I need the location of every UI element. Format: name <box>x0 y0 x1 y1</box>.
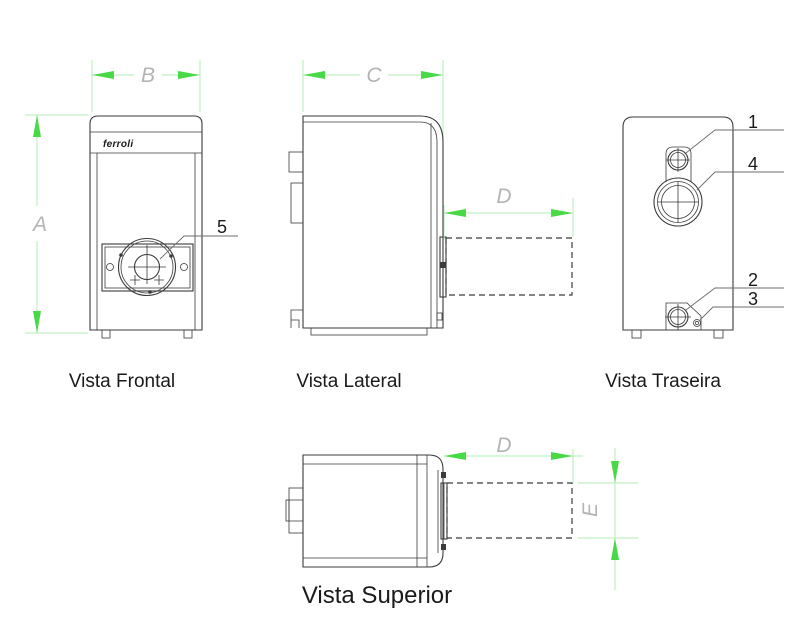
top-rear-pipe-stub <box>289 488 303 533</box>
burner-plate-outer <box>102 244 193 291</box>
panel-latch <box>437 313 442 320</box>
dim-e-label: E <box>579 502 602 517</box>
technical-drawing-page: B C A ferroli 5 <box>0 0 786 630</box>
callout-3-leader <box>700 307 784 320</box>
burner-projection-dashed <box>446 238 572 295</box>
dimension-a: A <box>25 115 88 333</box>
burner-stud-dot <box>148 290 152 294</box>
dim-a-label: A <box>31 213 47 236</box>
rear-foot-left <box>632 330 641 338</box>
dim-b-label: B <box>141 64 155 87</box>
front-foot-left <box>102 330 110 338</box>
rear-view-title: Vista Traseira <box>605 371 721 392</box>
top-view-title: Vista Superior <box>302 582 452 609</box>
callout-2-label: 2 <box>748 270 758 290</box>
dim-e-arrow-lower <box>611 538 619 560</box>
dim-d-side-label: D <box>496 185 511 208</box>
dim-b-arrow-right <box>178 71 200 79</box>
callout-4-label: 4 <box>748 154 758 174</box>
side-bottom-rear-fitting <box>291 310 303 328</box>
dim-c-arrow-right <box>421 71 443 79</box>
top-view <box>286 455 572 567</box>
flange-clip <box>440 262 446 268</box>
side-base-plinth <box>311 328 427 335</box>
callout-4-leader <box>697 172 784 190</box>
rear-pipe-stub-lower <box>291 183 303 223</box>
plate-screw-left <box>107 264 114 271</box>
top-body-outline <box>303 455 443 567</box>
top-clip-upper <box>441 472 446 478</box>
dim-d-top-arrow-right <box>551 452 573 460</box>
callout-3-label: 3 <box>748 289 758 309</box>
top-clip-lower <box>441 544 446 550</box>
burner-stud-dot <box>119 253 123 257</box>
fitting-2-crosshair <box>665 304 691 330</box>
front-view: ferroli 5 <box>90 116 238 338</box>
callout-1-leader <box>686 130 784 153</box>
dim-b-arrow-left <box>92 71 114 79</box>
dim-a-arrow-bottom <box>33 311 41 333</box>
front-side-panel-lines <box>97 153 195 330</box>
side-body-outline <box>303 116 443 328</box>
dim-d-top-arrow-left <box>444 452 466 460</box>
dimension-c: C <box>303 60 443 150</box>
top-inner-edge-lines <box>303 464 427 558</box>
burner-stud-dot <box>169 254 173 258</box>
dim-c-arrow-left <box>303 71 325 79</box>
top-front-panel-lines <box>417 455 427 567</box>
dim-d-top-label: D <box>496 434 511 457</box>
rear-view: 1 4 2 3 <box>623 112 784 338</box>
dim-e-arrow-upper <box>611 461 619 483</box>
side-view-title: Vista Lateral <box>296 371 401 392</box>
dimension-e: E <box>578 448 638 590</box>
burner-crosshair <box>128 245 166 284</box>
front-view-title: Vista Frontal <box>69 371 175 392</box>
dim-d-side-arrow-right <box>551 209 573 217</box>
drain-valve-circle <box>694 320 701 327</box>
ferroli-logo: ferroli <box>103 139 133 150</box>
callout-5-label: 5 <box>217 217 227 237</box>
flue-crosshair <box>658 182 698 222</box>
rear-foot-right <box>714 330 723 338</box>
dim-c-label: C <box>366 64 382 87</box>
plate-screw-right <box>181 264 188 271</box>
dimension-d-side: D <box>444 185 573 240</box>
dimension-b: B <box>92 60 200 112</box>
top-rear-pipe-step <box>286 500 289 521</box>
rear-pipe-stub-upper <box>289 152 303 172</box>
burner-plate-inner <box>105 247 190 288</box>
top-rear-pipe-ribs <box>289 500 303 521</box>
dim-e-lines <box>578 448 638 590</box>
callout-1-label: 1 <box>748 112 758 132</box>
front-foot-right <box>184 330 192 338</box>
side-view <box>289 116 572 335</box>
fitting-1-crosshair <box>666 148 690 172</box>
dim-d-side-arrow-left <box>444 209 466 217</box>
dimension-d-top: D <box>444 434 583 483</box>
boiler-orthographic-drawing: B C A ferroli 5 <box>0 0 786 630</box>
dim-a-arrow-top <box>33 115 41 137</box>
side-front-panel-inner <box>420 122 437 328</box>
top-burner-projection-dashed <box>447 483 572 538</box>
drain-valve-center <box>695 321 698 324</box>
